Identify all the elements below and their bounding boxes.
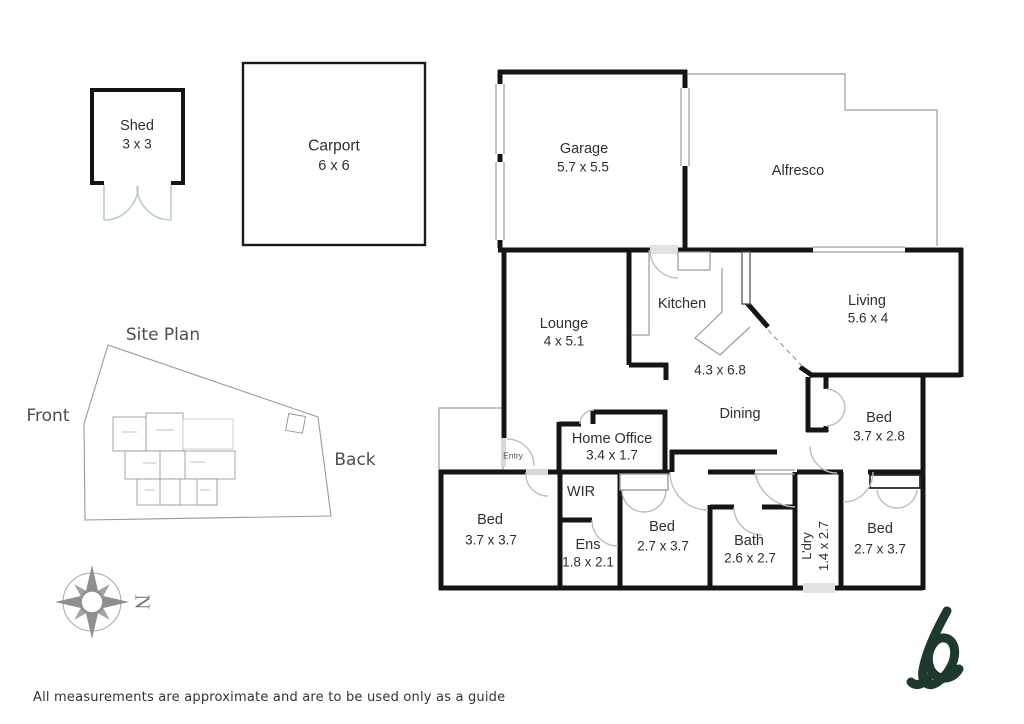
room-label-alfresco: Alfresco [772,162,824,180]
room-dims-carport: 6 x 6 [318,157,349,175]
porch-outline [439,408,503,470]
room-dims-bed-rear: 3.7 x 2.8 [853,429,905,446]
room-label-bed-rear: Bed [866,409,892,427]
room-dims-ens: 1.8 x 2.1 [562,555,614,572]
room-label-home-office: Home Office [572,430,652,448]
site-plan-drawing [84,345,331,520]
room-label-shed: Shed [120,117,154,135]
site-front-label: Front [27,406,70,426]
site-back-label: Back [334,450,375,470]
room-dims-living: 5.6 x 4 [848,311,889,328]
robe-shelf-outline [870,475,920,488]
floor-plan-drawing [0,0,1024,724]
room-dims-bath: 2.6 x 2.7 [724,551,776,568]
room-label-bed-front-right: Bed [867,520,893,538]
room-label-laundry-name: L’dry [799,521,816,571]
disclaimer-text: All measurements are approximate and are… [33,690,505,705]
room-dims-open-plan: 4.3 x 6.8 [694,363,746,380]
room-label-bath: Bath [734,532,764,550]
room-label-dining: Dining [719,405,760,423]
room-label-entry: Entry [503,451,523,462]
room-label-living: Living [848,292,886,310]
room-dims-lounge: 4 x 5.1 [544,334,585,351]
site-plan-title: Site Plan [126,325,200,345]
compass-rose-icon [55,565,129,639]
room-label-carport: Carport [308,136,360,155]
room-label-wir: WIR [567,483,595,501]
room-dims-bed-front-right: 2.7 x 3.7 [854,542,906,559]
room-label-bed-front-left: Bed [477,511,503,529]
pantry-outline [742,252,750,304]
room-dims-garage: 5.7 x 5.5 [557,160,609,177]
room-label-bed-mid: Bed [649,518,675,536]
room-dims-bed-mid: 2.7 x 3.7 [637,539,689,556]
room-dims-bed-front-left: 3.7 x 3.7 [465,533,517,550]
room-dims-home-office: 3.4 x 1.7 [586,448,638,465]
room-dims-laundry: 1.4 x 2.7 [816,521,833,571]
room-dims-shed: 3 x 3 [122,137,151,154]
shed-door-icon [104,185,171,220]
room-label-lounge: Lounge [540,315,588,333]
floor-plan-page: Shed 3 x 3 Carport 6 x 6 Garage 5.7 x 5.… [0,0,1024,724]
compass-north-label: N [130,594,155,609]
room-label-ens: Ens [576,536,601,554]
room-label-garage: Garage [560,140,608,158]
script-b-logo-icon [911,611,959,685]
room-label-kitchen: Kitchen [658,295,706,313]
open-plan-divider-dashed [768,330,802,366]
room-label-laundry: L’dry 1.4 x 2.7 [799,521,833,571]
walls [439,70,963,590]
